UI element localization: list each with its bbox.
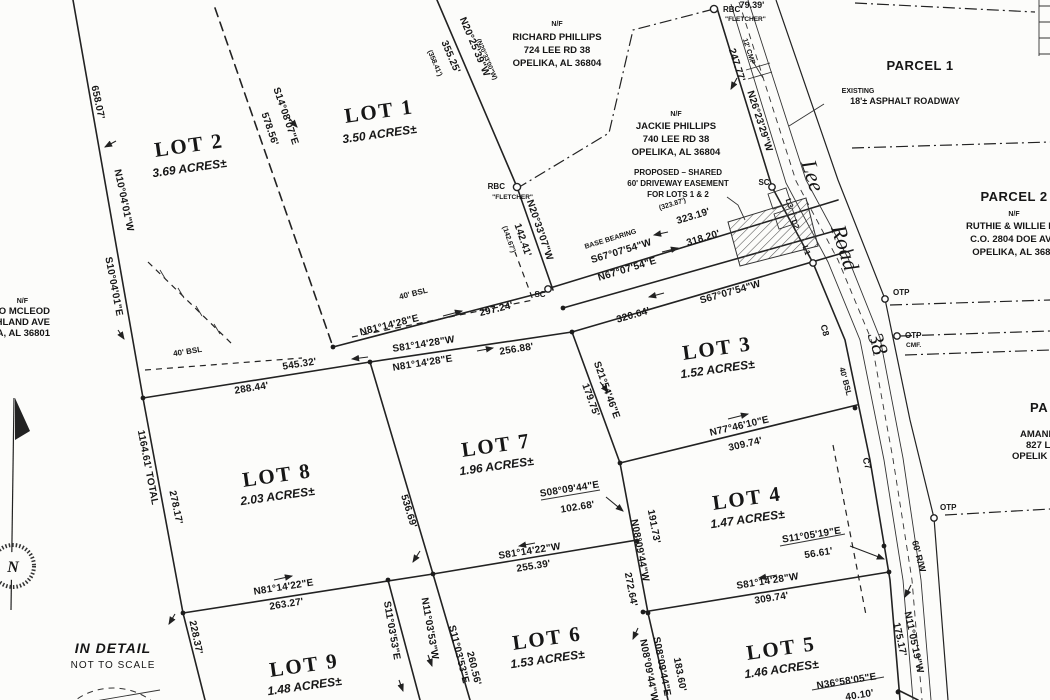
monument-points (513, 5, 937, 521)
dist-27264: 272.64' (622, 572, 639, 608)
dist-32319: 323.19' (675, 206, 711, 227)
dist-27817: 278.17' (166, 490, 184, 526)
otp-2-label: OTP (905, 331, 922, 340)
amanda-addr1: 827 L (1026, 440, 1050, 451)
survey-plat-drawing: N (0, 0, 1050, 700)
rbc-2-label: RBC (723, 5, 741, 14)
bearing-n811428e-25688: N81°14'28"E (392, 353, 454, 373)
amanda-name: AMAND (1020, 429, 1050, 440)
road-dist-24777: 247.77' (726, 47, 747, 83)
bearing-s080944e-10268: S08°09'44"E (539, 479, 600, 499)
bearing-s110519e: S11°05'19"E (781, 525, 842, 545)
parcel-2-label: PARCEL 2 (980, 189, 1047, 204)
curve-c8-label: C8 (819, 323, 832, 337)
dist-18360: 183.60' (671, 657, 688, 693)
sc-1-label: SC (534, 290, 545, 299)
survey-plat-page: N (0, 0, 1050, 700)
richard-nf: N/F (551, 21, 563, 28)
jackie-addr2: OPELIKA, AL 36804 (632, 147, 721, 158)
detail-circle (49, 688, 177, 700)
existing-label: EXISTING (842, 88, 875, 95)
ruthie-addr2: OPELIKA, AL 3680 (972, 247, 1050, 258)
rbc-1-label: RBC (488, 182, 506, 191)
bearing-s100401e: S10°04'01"E (102, 256, 124, 317)
otp-3-label: OTP (940, 503, 957, 512)
dist-54532: 545.32' (282, 356, 318, 372)
dist-35525: 355.25' (439, 39, 463, 75)
bearing-n774610e: N77°46'10"E (709, 414, 771, 438)
dist-17975: 179.75' (579, 382, 601, 418)
bearing-s670754w-lot3: S67°07'54"W (699, 279, 763, 307)
rbc-2-fletcher: "FLETCHER" (725, 16, 766, 23)
north-arrow-head (15, 398, 30, 440)
bsl-lot1-label: 40' BSL (398, 286, 428, 302)
jackie-addr1: 740 LEE RD 38 (643, 134, 710, 145)
richard-addr2: OPELIKA, AL 36804 (513, 58, 602, 69)
mcleod-nf: N/F (17, 298, 29, 305)
ruthie-name: RUTHIE & WILLIE DA (966, 221, 1050, 232)
dist-4010: 40.10' (845, 688, 875, 700)
jackie-name: JACKIE PHILLIPS (636, 121, 716, 132)
dist-53669: 536.69' (398, 493, 419, 529)
dist-29724: 297.24' (478, 300, 514, 319)
bearing-s811428w-25688: S81°14'28"W (392, 334, 456, 355)
sc-2-label: SC (758, 178, 769, 187)
dist-25688: 256.88' (499, 341, 535, 357)
richard-addr1: 724 LEE RD 38 (524, 45, 591, 56)
ruthie-addr1: C.O. 2804 DOE AVE (970, 234, 1050, 245)
road-name-road: Road (826, 221, 865, 275)
easement-line3: FOR LOTS 1 & 2 (647, 190, 709, 199)
dist-19173: 191.73' (645, 509, 662, 545)
dist-7939: 79.39' (740, 0, 765, 10)
detail-note: IN DETAIL NOT TO SCALE (71, 640, 156, 671)
not-to-scale-label: NOT TO SCALE (71, 660, 156, 671)
mcleod-name: BO MCLEOD (0, 306, 50, 317)
dimension-arrows (105, 60, 911, 691)
bearing-n811428e-29724: N81°14'28"E (359, 313, 421, 338)
dist-30974-lot3: 309.74' (727, 435, 763, 453)
bearing-n100401w: N10°04'01"W (111, 168, 135, 233)
north-label: N (6, 559, 20, 576)
in-detail-label: IN DETAIL (75, 640, 151, 656)
ruthie-nf: N/F (1008, 211, 1020, 218)
dist-35841-paren: (358.41') (426, 49, 443, 77)
mcleod-addr1: HLAND AVE (0, 317, 50, 328)
dist-32064: 320.64' (615, 306, 651, 326)
road-name-38: 38 (863, 328, 894, 358)
easement-line2: 60' DRIVEWAY EASEMENT (627, 179, 729, 188)
easement-line1: PROPOSED – SHARED (634, 168, 722, 177)
line-table-fragment (1039, 0, 1050, 56)
parcel-1-label: PARCEL 1 (886, 58, 953, 73)
dist-10268: 102.68' (560, 499, 596, 515)
north-arrow-compass: N (0, 398, 34, 610)
dist-31820: 318.20' (685, 228, 721, 249)
bearing-s110353e-lot9: S11°03'53"E (381, 600, 402, 661)
dist-32387-paren: (323.87') (658, 197, 687, 212)
bsl-lot2-label: 40' BSL (173, 345, 203, 358)
jackie-nf: N/F (670, 111, 682, 118)
otp-1-label: OTP (893, 288, 910, 297)
dist-5661: 56.61' (804, 546, 834, 561)
easement-note: PROPOSED – SHARED 60' DRIVEWAY EASEMENT … (627, 168, 729, 199)
amanda-addr2: OPELIK (1012, 451, 1048, 462)
row-width-label: 60' R/W (910, 539, 928, 573)
bearing-n110353w-lot9: N11°03'53"W (419, 597, 441, 661)
asphalt-roadway-label: 18'± ASPHALT ROADWAY (850, 96, 960, 106)
road-name-lee: Lee (796, 156, 830, 195)
otp-2-cmf: CMF. (906, 342, 921, 349)
richard-name: RICHARD PHILLIPS (512, 32, 601, 43)
culvert-label: 12' CMP (741, 38, 756, 66)
mcleod-addr2: A, AL 36801 (0, 328, 51, 339)
bearing-labels: 658.07' N10°04'01"W S10°04'01"E 1164.61'… (88, 16, 925, 700)
parcel-3-label: PA (1030, 400, 1048, 415)
line-l1-label: L1 (801, 244, 813, 256)
dist-25539: 255.39' (516, 558, 552, 574)
